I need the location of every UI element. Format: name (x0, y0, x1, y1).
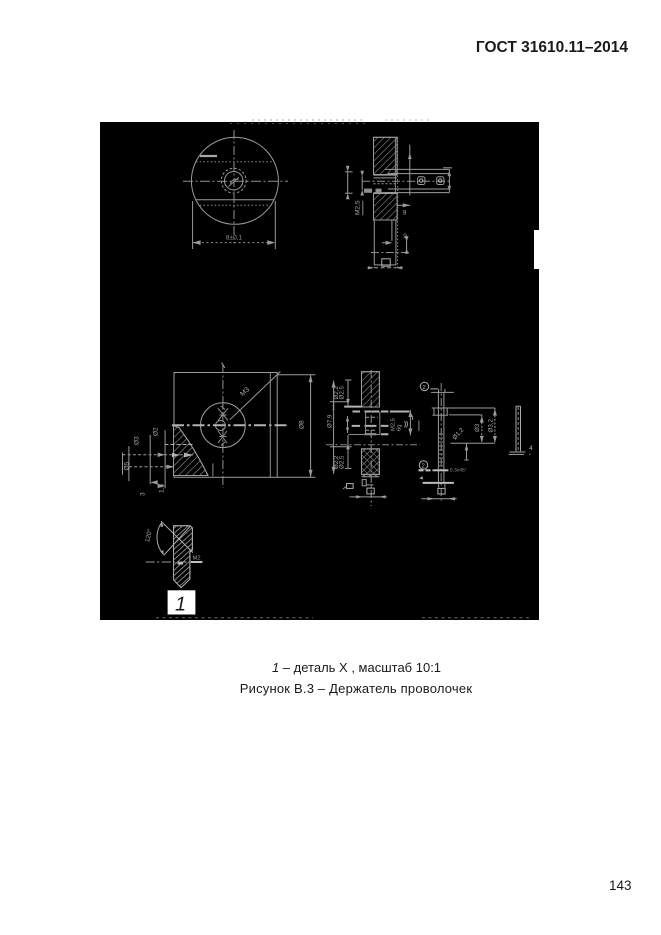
svg-text:6g: 6g (396, 425, 403, 431)
svg-text:Ø5: Ø5 (124, 461, 131, 470)
svg-text:8±0,1: 8±0,1 (226, 234, 243, 241)
svg-text:Ø2,2: Ø2,2 (333, 386, 340, 400)
svg-text:1: 1 (332, 405, 336, 412)
svg-text:3: 3 (140, 492, 147, 496)
svg-text:Ø8: Ø8 (299, 420, 306, 429)
svg-text:Ø2,2: Ø2,2 (333, 455, 340, 469)
svg-text:Ø7,9: Ø7,9 (327, 414, 334, 428)
svg-text:4: 4 (529, 445, 533, 452)
svg-text:9: 9 (403, 210, 407, 217)
svg-text:9: 9 (403, 233, 407, 240)
svg-text:Ø1,2: Ø1,2 (451, 426, 466, 441)
svg-text:120°: 120° (144, 528, 154, 543)
svg-text:М2: М2 (193, 555, 201, 562)
svg-text:М3: М3 (239, 386, 251, 398)
svg-text:Ø2: Ø2 (153, 427, 160, 436)
svg-text:Ø3,2: Ø3,2 (488, 419, 495, 433)
svg-text:Ø3: Ø3 (134, 436, 141, 445)
svg-text:1: 1 (175, 594, 186, 616)
svg-text:0,3х45°: 0,3х45° (450, 467, 467, 473)
svg-text:М2,5: М2,5 (355, 200, 362, 215)
svg-text:Ø3: Ø3 (474, 423, 481, 432)
svg-text:М2,5: М2,5 (390, 418, 397, 431)
